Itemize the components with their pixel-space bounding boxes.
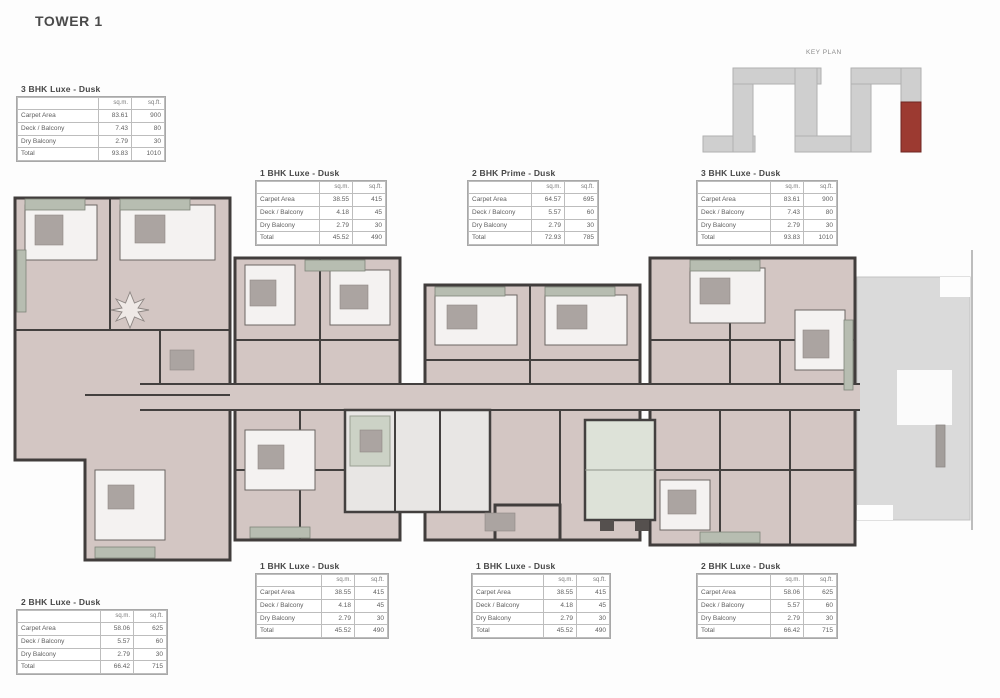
unit-table-col-header: sq.ft.	[355, 575, 388, 587]
unit-table-row-label: Carpet Area	[18, 110, 99, 123]
unit-table-row: Total72.93785	[469, 232, 598, 245]
unit-table-value: 45	[355, 599, 388, 612]
unit-table-value: 2.79	[771, 219, 804, 232]
unit-table-col-header: sq.ft.	[132, 98, 165, 110]
unit-table-col-header: sq.m.	[544, 575, 577, 587]
unit-table-value: 2.79	[322, 612, 355, 625]
unit-table-row: Carpet Area58.06625	[698, 587, 837, 600]
unit-table-value: 30	[804, 219, 837, 232]
unit-table-value: 83.61	[771, 194, 804, 207]
unit-table-row-label: Carpet Area	[698, 587, 771, 600]
unit-table-value: 4.18	[322, 599, 355, 612]
unit-table-col-header: sq.m.	[320, 182, 353, 194]
unit-table-value: 93.83	[771, 232, 804, 245]
unit-table-row: Total66.42715	[18, 661, 167, 674]
unit-table-value: 625	[804, 587, 837, 600]
unit-table-title: 3 BHK Luxe - Dusk	[21, 84, 165, 94]
unit-table-row-label: Carpet Area	[257, 587, 322, 600]
unit-table-row: Dry Balcony2.7930	[469, 219, 598, 232]
unit-table-value: 5.57	[771, 599, 804, 612]
unit-table-value: 2.79	[532, 219, 565, 232]
unit-table-row-label: Deck / Balcony	[469, 206, 532, 219]
unit-table-value: 2.79	[101, 648, 134, 661]
unit-table-row: Deck / Balcony4.1845	[257, 206, 386, 219]
unit-spec-table: 2 BHK Prime - Dusksq.m.sq.ft.Carpet Area…	[468, 168, 598, 245]
unit-table-row-label: Total	[257, 232, 320, 245]
unit-table-value: 1010	[132, 148, 165, 161]
unit-table-row: Carpet Area58.06625	[18, 623, 167, 636]
unit-table-row-label: Total	[473, 625, 544, 638]
unit-table-row: Dry Balcony2.7930	[257, 612, 388, 625]
unit-table-value: 715	[804, 625, 837, 638]
unit-table-value: 625	[134, 623, 167, 636]
unit-table-value: 490	[355, 625, 388, 638]
unit-table-value: 72.93	[532, 232, 565, 245]
unit-table-row-label: Carpet Area	[18, 623, 101, 636]
unit-table-col-header: sq.ft.	[134, 611, 167, 623]
unit-table-title: 1 BHK Luxe - Dusk	[260, 561, 388, 571]
unit-table: sq.m.sq.ft.Carpet Area38.55415Deck / Bal…	[256, 574, 388, 638]
unit-table-col-header: sq.m.	[771, 575, 804, 587]
unit-table-col-header	[257, 182, 320, 194]
unit-table-value: 93.83	[99, 148, 132, 161]
unit-table-col-header	[698, 182, 771, 194]
unit-table-row: Carpet Area83.61900	[698, 194, 837, 207]
unit-table-row: Total45.52490	[257, 625, 388, 638]
unit-table-col-header: sq.ft.	[577, 575, 610, 587]
unit-table-row-label: Deck / Balcony	[257, 206, 320, 219]
unit-table-row: Carpet Area38.55415	[257, 587, 388, 600]
unit-table-value: 30	[134, 648, 167, 661]
unit-table-row: Dry Balcony2.7930	[698, 612, 837, 625]
unit-table-value: 2.79	[99, 135, 132, 148]
unit-table-row: Dry Balcony2.7930	[18, 648, 167, 661]
unit-spec-table: 2 BHK Luxe - Dusksq.m.sq.ft.Carpet Area5…	[697, 561, 837, 638]
unit-table-value: 30	[355, 612, 388, 625]
unit-spec-table: 3 BHK Luxe - Dusksq.m.sq.ft.Carpet Area8…	[17, 84, 165, 161]
unit-table-row-label: Total	[257, 625, 322, 638]
unit-table-row: Carpet Area83.61900	[18, 110, 165, 123]
unit-table-value: 45	[577, 599, 610, 612]
unit-table-value: 45.52	[544, 625, 577, 638]
unit-table-value: 60	[565, 206, 598, 219]
unit-table-row: Carpet Area64.57695	[469, 194, 598, 207]
terrace-area	[857, 250, 972, 530]
unit-table-row-label: Dry Balcony	[469, 219, 532, 232]
unit-table-row: Deck / Balcony4.1845	[257, 599, 388, 612]
unit-table-value: 5.57	[532, 206, 565, 219]
unit-table-value: 38.55	[322, 587, 355, 600]
unit-table-row: Deck / Balcony5.5760	[698, 599, 837, 612]
unit-table-value: 7.43	[99, 122, 132, 135]
unit-table-value: 64.57	[532, 194, 565, 207]
unit-table-row-label: Dry Balcony	[473, 612, 544, 625]
unit-table-row: Carpet Area38.55415	[257, 194, 386, 207]
unit-table-row-label: Deck / Balcony	[698, 599, 771, 612]
unit-table-row-label: Total	[18, 661, 101, 674]
unit-table: sq.m.sq.ft.Carpet Area58.06625Deck / Bal…	[697, 574, 837, 638]
unit-table-row: Dry Balcony2.7930	[257, 219, 386, 232]
unit-table-title: 2 BHK Luxe - Dusk	[701, 561, 837, 571]
unit-table-value: 415	[353, 194, 386, 207]
unit-table-value: 5.57	[101, 635, 134, 648]
unit-table-value: 490	[353, 232, 386, 245]
key-plan-highlighted-tower	[901, 102, 921, 152]
unit-table-row: Deck / Balcony5.5760	[469, 206, 598, 219]
unit-table-row: Dry Balcony2.7930	[473, 612, 610, 625]
unit-table-col-header: sq.ft.	[565, 182, 598, 194]
unit-table-title: 1 BHK Luxe - Dusk	[476, 561, 610, 571]
unit-table-col-header	[698, 575, 771, 587]
unit-table-col-header: sq.m.	[99, 98, 132, 110]
unit-table-row-label: Total	[698, 232, 771, 245]
unit-table-value: 38.55	[320, 194, 353, 207]
unit-table-row-label: Deck / Balcony	[257, 599, 322, 612]
unit-table-col-header	[473, 575, 544, 587]
unit-table: sq.m.sq.ft.Carpet Area38.55415Deck / Bal…	[256, 181, 386, 245]
unit-table-value: 30	[577, 612, 610, 625]
unit-table-value: 80	[804, 206, 837, 219]
unit-table-col-header	[257, 575, 322, 587]
terrace-cutout	[897, 370, 952, 425]
unit-table-title: 1 BHK Luxe - Dusk	[260, 168, 386, 178]
unit-table-row: Deck / Balcony5.5760	[18, 635, 167, 648]
unit-table-row: Total93.831010	[698, 232, 837, 245]
unit-table-value: 900	[804, 194, 837, 207]
unit-table: sq.m.sq.ft.Carpet Area64.57695Deck / Bal…	[468, 181, 598, 245]
unit-table-row: Total45.52490	[257, 232, 386, 245]
unit-table-value: 2.79	[771, 612, 804, 625]
unit-table-row-label: Deck / Balcony	[18, 635, 101, 648]
unit-table-value: 38.55	[544, 587, 577, 600]
unit-table-value: 2.79	[544, 612, 577, 625]
unit-table-row: Dry Balcony2.7930	[18, 135, 165, 148]
unit-spec-table: 1 BHK Luxe - Dusksq.m.sq.ft.Carpet Area3…	[472, 561, 610, 638]
unit-table-col-header	[469, 182, 532, 194]
key-plan	[703, 68, 921, 152]
unit-table-value: 30	[804, 612, 837, 625]
unit-table-value: 80	[132, 122, 165, 135]
floor-plan-page: TOWER 1 KEY PLAN 3 BHK Luxe - Dusksq.m.s…	[0, 0, 1000, 698]
unit-table-row-label: Dry Balcony	[18, 135, 99, 148]
unit-table: sq.m.sq.ft.Carpet Area58.06625Deck / Bal…	[17, 610, 167, 674]
unit-table-value: 66.42	[101, 661, 134, 674]
unit-table-row-label: Dry Balcony	[257, 219, 320, 232]
unit-table-value: 45.52	[320, 232, 353, 245]
unit-table-value: 60	[804, 599, 837, 612]
unit-table-value: 66.42	[771, 625, 804, 638]
unit-table-col-header: sq.m.	[101, 611, 134, 623]
unit-table-value: 695	[565, 194, 598, 207]
unit-table-value: 83.61	[99, 110, 132, 123]
key-plan-label: KEY PLAN	[806, 49, 842, 56]
unit-table-value: 30	[565, 219, 598, 232]
unit-table-value: 4.18	[320, 206, 353, 219]
unit-table-row-label: Dry Balcony	[698, 612, 771, 625]
unit-table-row-label: Total	[18, 148, 99, 161]
unit-table-value: 1010	[804, 232, 837, 245]
unit-table-value: 45.52	[322, 625, 355, 638]
unit-table-col-header	[18, 611, 101, 623]
unit-table-value: 415	[577, 587, 610, 600]
unit-table-row-label: Carpet Area	[469, 194, 532, 207]
page-title: TOWER 1	[35, 13, 103, 29]
unit-table-value: 30	[132, 135, 165, 148]
unit-table-row-label: Dry Balcony	[18, 648, 101, 661]
unit-table-value: 785	[565, 232, 598, 245]
unit-table-row-label: Deck / Balcony	[698, 206, 771, 219]
unit-spec-table: 1 BHK Luxe - Dusksq.m.sq.ft.Carpet Area3…	[256, 561, 388, 638]
unit-table-row: Deck / Balcony7.4380	[698, 206, 837, 219]
unit-table-col-header: sq.m.	[322, 575, 355, 587]
unit-table-value: 60	[134, 635, 167, 648]
unit-table-row-label: Dry Balcony	[257, 612, 322, 625]
unit-table-title: 3 BHK Luxe - Dusk	[701, 168, 837, 178]
unit-table-value: 58.06	[101, 623, 134, 636]
unit-table-row-label: Carpet Area	[698, 194, 771, 207]
corridor	[140, 384, 860, 410]
unit-table-row: Deck / Balcony7.4380	[18, 122, 165, 135]
unit-table-row-label: Carpet Area	[257, 194, 320, 207]
unit-table-col-header: sq.m.	[771, 182, 804, 194]
unit-table-col-header: sq.ft.	[804, 182, 837, 194]
floor-plan-drawing	[15, 198, 972, 560]
unit-table-value: 4.18	[544, 599, 577, 612]
unit-table-row-label: Deck / Balcony	[18, 122, 99, 135]
unit-table-title: 2 BHK Prime - Dusk	[472, 168, 598, 178]
unit-table-row: Deck / Balcony4.1845	[473, 599, 610, 612]
unit-table-value: 45	[353, 206, 386, 219]
unit-table-value: 2.79	[320, 219, 353, 232]
unit-table-row: Total66.42715	[698, 625, 837, 638]
unit-table-title: 2 BHK Luxe - Dusk	[21, 597, 167, 607]
unit-table-col-header: sq.ft.	[804, 575, 837, 587]
unit-table-row: Carpet Area38.55415	[473, 587, 610, 600]
unit-table-value: 415	[355, 587, 388, 600]
unit-table-row-label: Carpet Area	[473, 587, 544, 600]
unit-table-row-label: Deck / Balcony	[473, 599, 544, 612]
unit-table: sq.m.sq.ft.Carpet Area83.61900Deck / Bal…	[17, 97, 165, 161]
unit-table-row-label: Total	[469, 232, 532, 245]
unit-table: sq.m.sq.ft.Carpet Area83.61900Deck / Bal…	[697, 181, 837, 245]
unit-table-value: 30	[353, 219, 386, 232]
unit-table-row: Dry Balcony2.7930	[698, 219, 837, 232]
unit-spec-table: 3 BHK Luxe - Dusksq.m.sq.ft.Carpet Area8…	[697, 168, 837, 245]
unit-table-col-header: sq.ft.	[353, 182, 386, 194]
unit-table: sq.m.sq.ft.Carpet Area38.55415Deck / Bal…	[472, 574, 610, 638]
unit-table-row: Total93.831010	[18, 148, 165, 161]
unit-table-col-header: sq.m.	[532, 182, 565, 194]
unit-table-row-label: Dry Balcony	[698, 219, 771, 232]
ladder-icon	[936, 425, 945, 467]
unit-table-row: Total45.52490	[473, 625, 610, 638]
unit-table-row-label: Total	[698, 625, 771, 638]
unit-table-col-header	[18, 98, 99, 110]
unit-spec-table: 2 BHK Luxe - Dusksq.m.sq.ft.Carpet Area5…	[17, 597, 167, 674]
unit-table-value: 715	[134, 661, 167, 674]
unit-table-value: 58.06	[771, 587, 804, 600]
unit-table-value: 7.43	[771, 206, 804, 219]
unit-table-value: 490	[577, 625, 610, 638]
unit-spec-table: 1 BHK Luxe - Dusksq.m.sq.ft.Carpet Area3…	[256, 168, 386, 245]
unit-table-value: 900	[132, 110, 165, 123]
